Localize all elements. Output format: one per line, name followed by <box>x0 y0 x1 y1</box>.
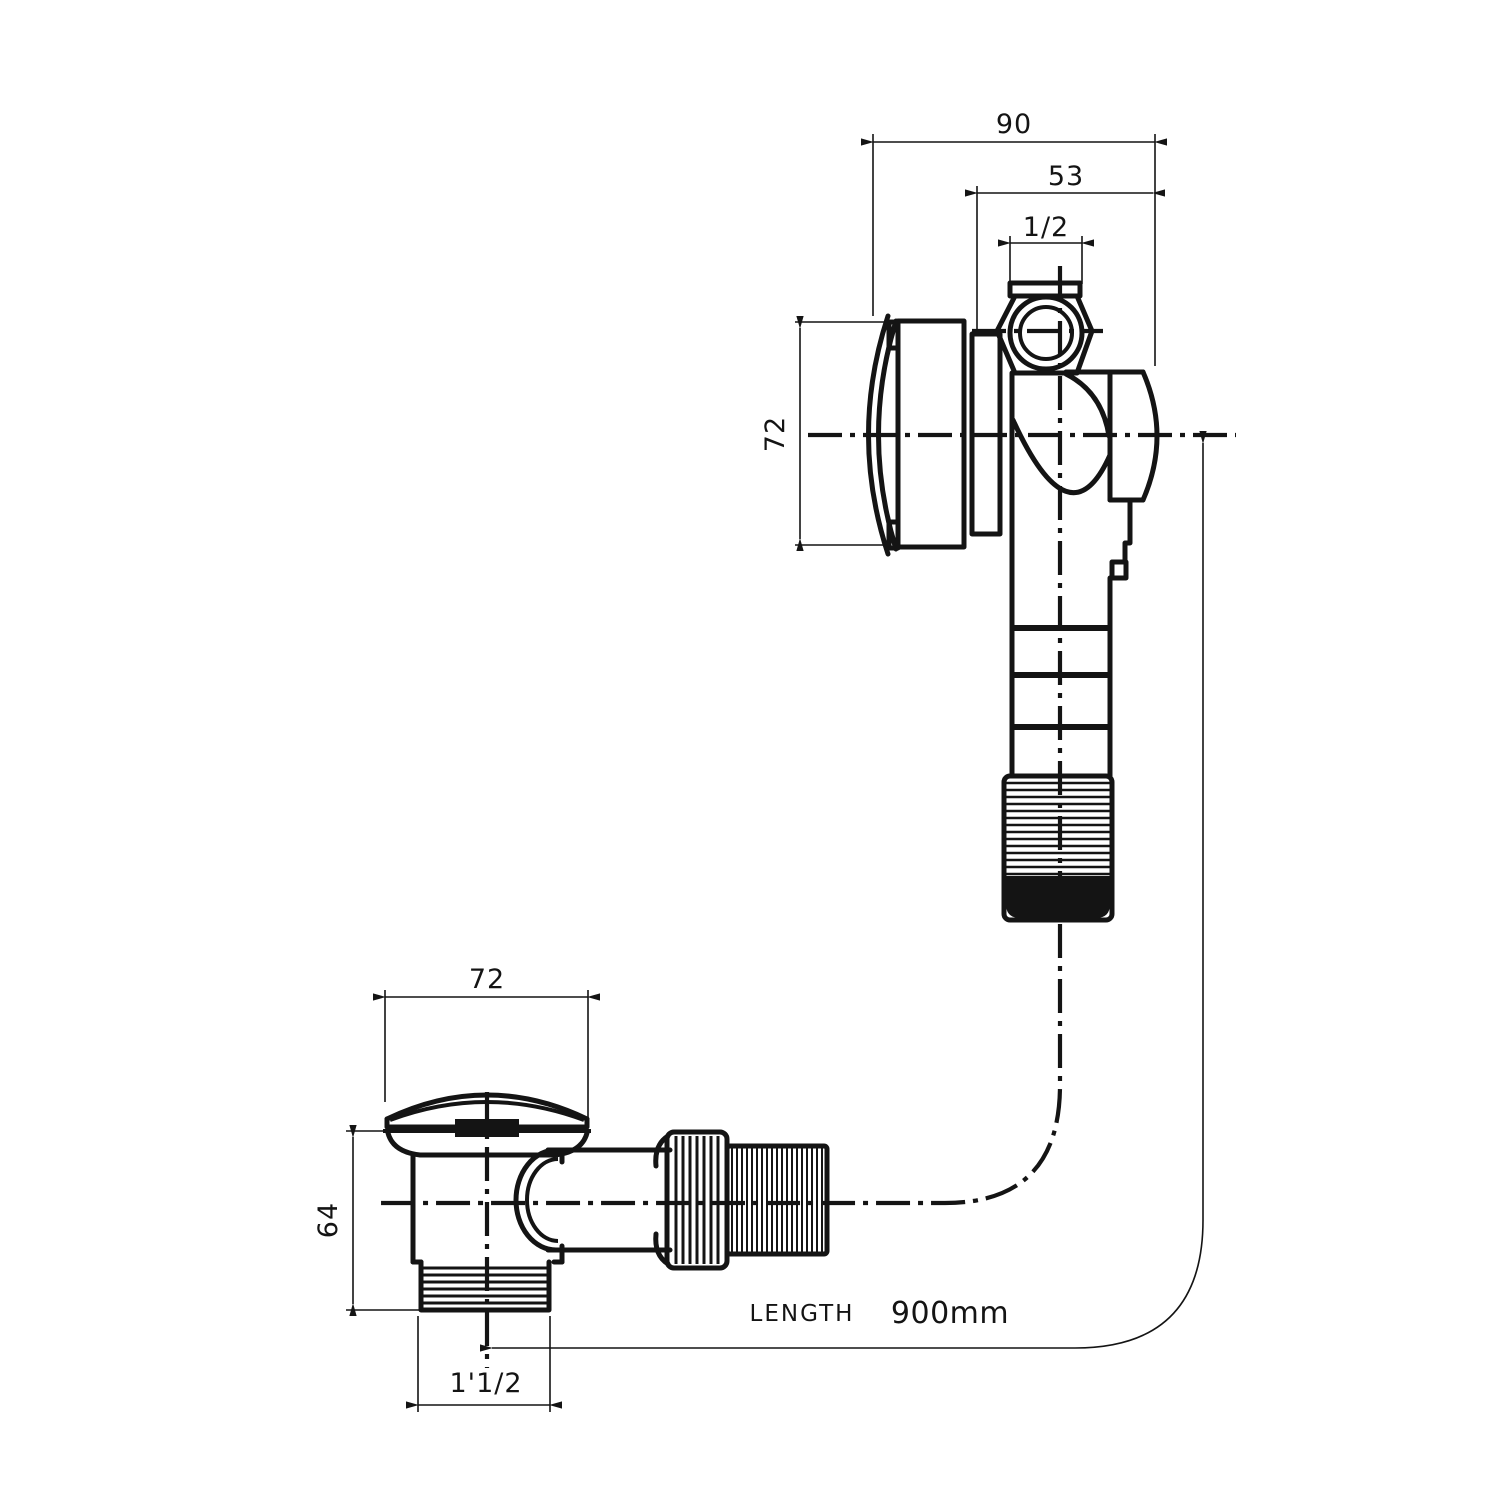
filler-spout-body <box>1013 372 1157 578</box>
hose-length-label: LENGTH <box>750 1301 855 1327</box>
dimension-overflow-width: 90 <box>873 109 1155 366</box>
waste-plug-stem <box>455 1119 519 1137</box>
dim-waste-thread-label: 1'1/2 <box>449 1368 522 1399</box>
outlet-knurled-nut <box>656 1132 727 1268</box>
technical-drawing-page: 90 53 1/2 72 72 64 1'1/2 LENGTH <box>0 0 1500 1500</box>
dim-waste-height-label: 64 <box>313 1202 344 1238</box>
outlet-male-thread <box>727 1146 827 1254</box>
outlet-thread-hatch <box>732 1148 822 1252</box>
dim-overflow-width-label: 90 <box>996 109 1032 140</box>
thread-connector-ferrule <box>1006 876 1110 918</box>
waste-elbow-outlet <box>516 1150 670 1250</box>
dimension-waste-height: 64 <box>313 1131 422 1310</box>
dimension-inlet-size: 1/2 <box>1010 212 1082 284</box>
knurled-nut-ribs <box>676 1136 718 1264</box>
dim-inlet-size-label: 1/2 <box>1023 212 1069 243</box>
hose-length-value: 900mm <box>891 1296 1009 1331</box>
inlet-hex-nut <box>997 283 1092 373</box>
dimension-waste-thread: 1'1/2 <box>418 1316 550 1412</box>
bath-filler-technical-drawing: 90 53 1/2 72 72 64 1'1/2 LENGTH <box>0 0 1500 1500</box>
overflow-filler-assembly <box>869 283 1158 920</box>
dim-overflow-face-label: 72 <box>760 416 791 452</box>
dim-waste-flange-label: 72 <box>469 964 505 995</box>
dim-overflow-offset-label: 53 <box>1048 161 1084 192</box>
dimension-overflow-offset: 53 <box>977 161 1153 332</box>
spout-side-tab <box>1112 562 1126 578</box>
